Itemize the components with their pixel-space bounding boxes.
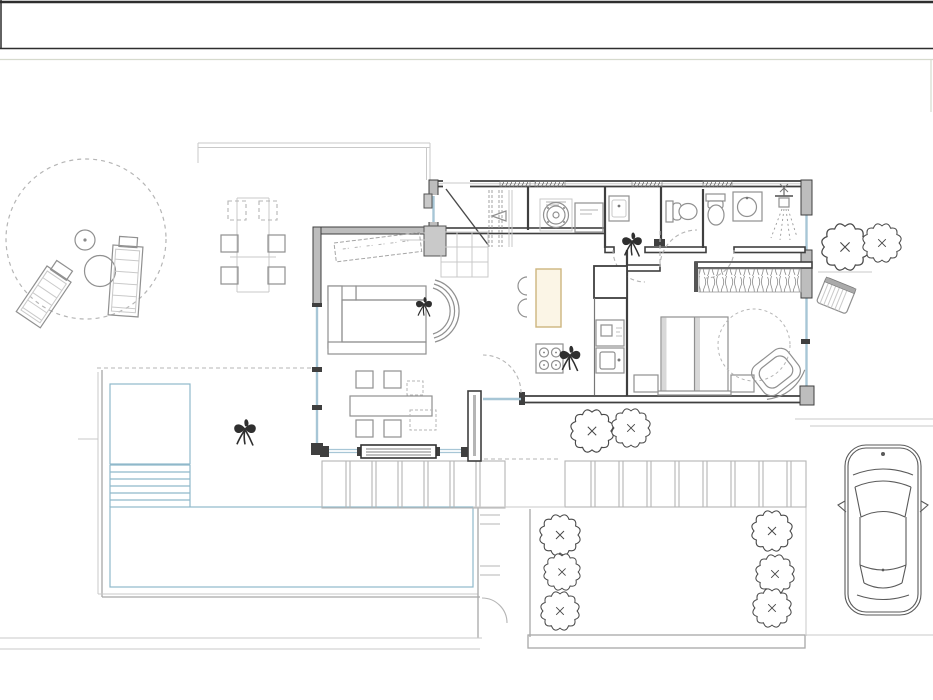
patio-lounge-circle (6, 159, 166, 328)
bathroom (706, 184, 797, 240)
cooktop-symbol (536, 344, 563, 373)
potted-plant-symbol (622, 233, 642, 257)
clerestory-window (632, 181, 662, 187)
entry-door-leaf (446, 189, 489, 246)
wc (609, 196, 697, 222)
floor-plan-drawing (0, 0, 933, 700)
oven-symbol (596, 320, 624, 346)
terrace-paving (322, 459, 806, 508)
wood-deck (110, 384, 473, 587)
shrub-symbol (822, 224, 868, 270)
laundry-sink-symbol (609, 196, 629, 221)
washing-machine-symbol (540, 199, 572, 231)
shrub-symbol (541, 592, 579, 630)
shrub-symbol (752, 511, 792, 551)
nightstand-symbol (634, 375, 658, 392)
tv-sideboard-symbol (334, 233, 422, 262)
shower-symbol (771, 184, 797, 240)
entry-vestibule (400, 194, 488, 277)
patio-side-table-symbol (75, 230, 95, 250)
shrub-symbol (753, 589, 791, 627)
shrub-symbol (756, 555, 794, 593)
sliding-glass-door-symbol (361, 445, 436, 458)
sun-lounger-symbol (108, 236, 143, 317)
utility-room (540, 199, 603, 232)
shrub-symbol (863, 224, 901, 262)
window-frame (0, 0, 933, 112)
wardrobe-symbol (699, 269, 801, 292)
toilet-symbol (706, 194, 725, 225)
shrub-symbol (544, 554, 580, 590)
double-bed-symbol (658, 317, 731, 395)
car-symbol (838, 445, 928, 615)
dining-table-symbol (350, 371, 436, 437)
tall-cabinet-symbol (594, 266, 627, 298)
sofa-symbol (328, 286, 426, 354)
outdoor-dining-set (221, 198, 285, 292)
clerestory-window (500, 181, 530, 187)
nightstand-symbol (731, 375, 754, 392)
living-room (328, 233, 459, 437)
rain-barrel-symbol (816, 277, 856, 314)
shrub-symbol (571, 410, 613, 452)
stairs-symbol (110, 465, 190, 507)
kitchen (518, 266, 627, 395)
bedroom (634, 269, 809, 405)
washbasin-symbol (733, 192, 762, 221)
clerestory-window (535, 181, 565, 187)
potted-plant-symbol (234, 419, 256, 445)
sun-lounger-symbol (16, 258, 76, 328)
house (311, 180, 814, 462)
toilet-symbol (666, 201, 697, 222)
clerestory-window (703, 181, 732, 187)
driveway (838, 445, 928, 615)
drawing-canvas (0, 0, 933, 700)
kitchen-sink-symbol (596, 348, 624, 373)
shrub-symbol (612, 409, 650, 447)
shrub-symbol (540, 515, 580, 555)
kitchen-island-symbol (518, 269, 561, 327)
